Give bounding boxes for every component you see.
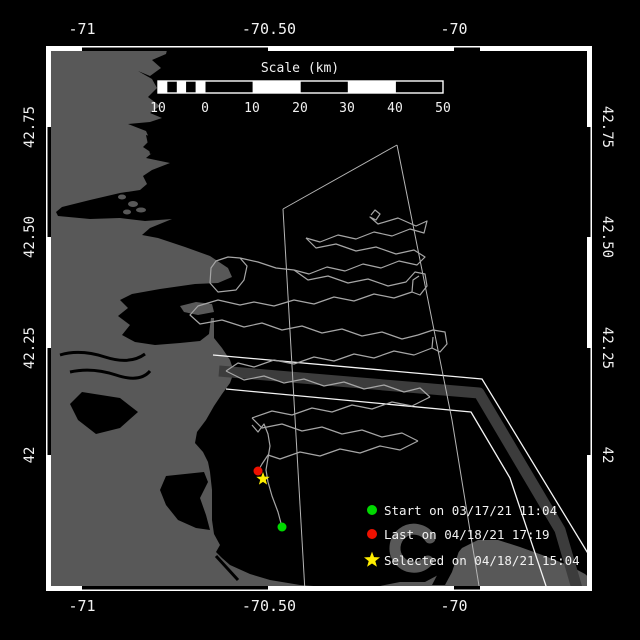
start-dot-icon [362,501,382,519]
right-axis-tick-label: 42 [599,447,615,464]
land-island [136,208,146,213]
start-position-marker[interactable] [278,523,287,532]
bottom-axis-tick-label: -70.50 [242,597,296,615]
left-axis-tick-label: 42.25 [22,327,38,369]
scale-tick-label: 20 [292,101,308,116]
land-island [118,195,126,200]
drifter-track-map-page: -71 -70.50 -70 -71 -70.50 -70 42.75 42.5… [0,0,640,640]
legend-item-start: Start on 03/17/21 11:04 [362,501,557,519]
legend-last-label: Last on 04/18/21 17:19 [384,527,550,542]
right-axis-tick-label: 42.75 [599,106,615,148]
legend-selected-label: Selected on 04/18/21 15:04 [384,553,580,568]
last-dot-icon [362,525,382,543]
right-axis-tick-label: 42.50 [599,216,615,258]
top-axis-tick-label: -70.50 [242,20,296,38]
land-island [123,210,131,215]
scale-bar-title: Scale (km) [261,61,339,76]
last-position-marker[interactable] [254,467,263,476]
scale-tick-label: 10 [244,101,260,116]
top-axis-tick-label: -71 [68,20,95,38]
legend-item-last: Last on 04/18/21 17:19 [362,525,550,543]
bottom-axis-tick-label: -70 [440,597,467,615]
scale-tick-label: 40 [387,101,403,116]
bottom-axis-tick-label: -71 [68,597,95,615]
scale-tick-label: 0 [201,101,209,116]
scale-tick-label: 50 [435,101,451,116]
land-island [128,201,138,207]
left-axis-tick-label: 42.75 [22,106,38,148]
top-axis-tick-label: -70 [440,20,467,38]
legend-start-label: Start on 03/17/21 11:04 [384,503,557,518]
left-axis-tick-label: 42 [22,447,38,464]
selected-star-icon [362,551,382,569]
scale-tick-label: 30 [339,101,355,116]
scale-tick-label: 10 [150,101,166,116]
right-axis-tick-label: 42.25 [599,327,615,369]
left-axis-tick-label: 42.50 [22,216,38,258]
legend-item-selected: Selected on 04/18/21 15:04 [362,551,580,569]
